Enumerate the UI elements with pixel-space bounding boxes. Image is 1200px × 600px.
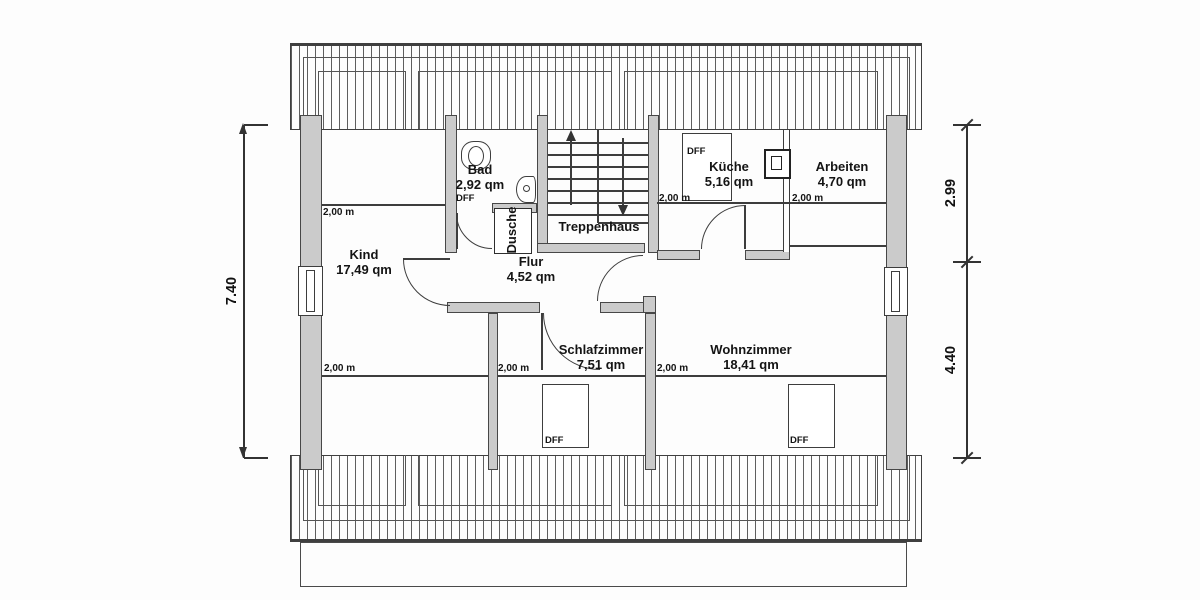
room-name: Treppenhaus <box>559 220 640 235</box>
room-label-treppenhaus: Treppenhaus <box>559 220 640 235</box>
dim-arrow-down-icon <box>239 447 247 458</box>
wall-schlaf-wohnzimmer <box>645 313 656 470</box>
window-right-glass <box>891 271 900 312</box>
room-area: 17,49 qm <box>336 263 392 278</box>
room-name: Schlafzimmer <box>559 343 644 358</box>
dim-label-right-bottom: 4.40 <box>943 346 959 374</box>
window-left-glass <box>306 270 315 312</box>
dff-label: DFF <box>687 146 705 157</box>
room-area: 2,92 qm <box>456 178 504 193</box>
roof-band-bottom-inset-2b <box>418 455 612 506</box>
stair-divider <box>597 130 599 223</box>
room-area: 18,41 qm <box>710 358 791 373</box>
roof-band-bottom-inset-2a <box>318 455 406 506</box>
room-label-dusche: Dusche <box>505 207 520 254</box>
wall-flur-south-a <box>447 302 540 313</box>
wall-kueche-south-a <box>657 250 700 260</box>
line-arbeiten-wohnzimmer <box>790 245 886 247</box>
dff-label: DFF <box>456 193 474 204</box>
room-area: 4,52 qm <box>507 270 555 285</box>
height-mark-label: 2,00 m <box>324 363 355 374</box>
height-line-top-kind <box>322 204 445 206</box>
roof-band-bottom-inset-2c <box>624 455 878 506</box>
dim-tick <box>244 124 268 126</box>
wall-kind-schlafzimmer <box>488 313 498 470</box>
stair-up-arrow-shaft <box>570 141 572 205</box>
room-label-wohnzimmer: Wohnzimmer18,41 qm <box>710 343 791 372</box>
height-line-bottom-kind <box>322 375 488 377</box>
chimney-flue <box>771 156 782 170</box>
room-area: 7,51 qm <box>559 358 644 373</box>
wall-stair-west <box>537 115 548 253</box>
dimension-line-right <box>966 125 968 458</box>
dim-label-left: 7.40 <box>224 277 240 305</box>
sink-drain-icon <box>523 185 530 192</box>
height-mark-label: 2,00 m <box>323 207 354 218</box>
room-area: 4,70 qm <box>816 175 869 190</box>
dim-label-right-top: 2.99 <box>943 179 959 207</box>
room-name: Bad <box>456 163 504 178</box>
dimension-line-left <box>243 125 245 458</box>
stair-down-arrow-icon <box>618 205 628 216</box>
room-name: Wohnzimmer <box>710 343 791 358</box>
stair-up-arrow-icon <box>566 130 576 141</box>
wall-stair-east <box>648 115 659 253</box>
dim-tick <box>244 457 268 459</box>
roof-band-top-inset-2c <box>624 71 878 129</box>
dff-label: DFF <box>545 435 563 446</box>
dim-arrow-up-icon <box>239 123 247 134</box>
room-name: Kind <box>336 248 392 263</box>
room-name: Arbeiten <box>816 160 869 175</box>
height-line-bottom-wohn <box>656 375 886 377</box>
room-label-kueche: Küche5,16 qm <box>705 160 753 189</box>
room-label-kind: Kind17,49 qm <box>336 248 392 277</box>
roof-overhang-outline <box>300 542 907 587</box>
room-name: Küche <box>705 160 753 175</box>
height-mark-label: 2,00 m <box>657 363 688 374</box>
room-name: Flur <box>507 255 555 270</box>
door-leaf-kind <box>403 258 450 260</box>
height-line-top-right <box>657 202 886 204</box>
door-leaf-kueche <box>744 205 746 249</box>
floor-plan-canvas: Kind17,49 qmBad2,92 qmDuscheTreppenhausF… <box>0 0 1200 600</box>
height-mark-label: 2,00 m <box>659 193 690 204</box>
room-name: Dusche <box>505 207 520 254</box>
wall-stair-south <box>537 243 645 253</box>
roof-band-top-inset-2a <box>318 71 406 129</box>
height-mark-label: 2,00 m <box>498 363 529 374</box>
wall-jamb-wohnzimmer <box>643 296 656 313</box>
room-area: 5,16 qm <box>705 175 753 190</box>
height-mark-label: 2,00 m <box>792 193 823 204</box>
room-label-schlafzimmer: Schlafzimmer7,51 qm <box>559 343 644 372</box>
room-label-arbeiten: Arbeiten4,70 qm <box>816 160 869 189</box>
height-line-bottom-schlaf <box>498 375 645 377</box>
room-label-bad: Bad2,92 qm <box>456 163 504 192</box>
dff-label: DFF <box>790 435 808 446</box>
door-leaf-bad <box>456 213 458 249</box>
door-leaf-schlafzimmer <box>541 313 543 370</box>
room-label-flur: Flur4,52 qm <box>507 255 555 284</box>
stair-down-arrow-shaft <box>622 138 624 206</box>
